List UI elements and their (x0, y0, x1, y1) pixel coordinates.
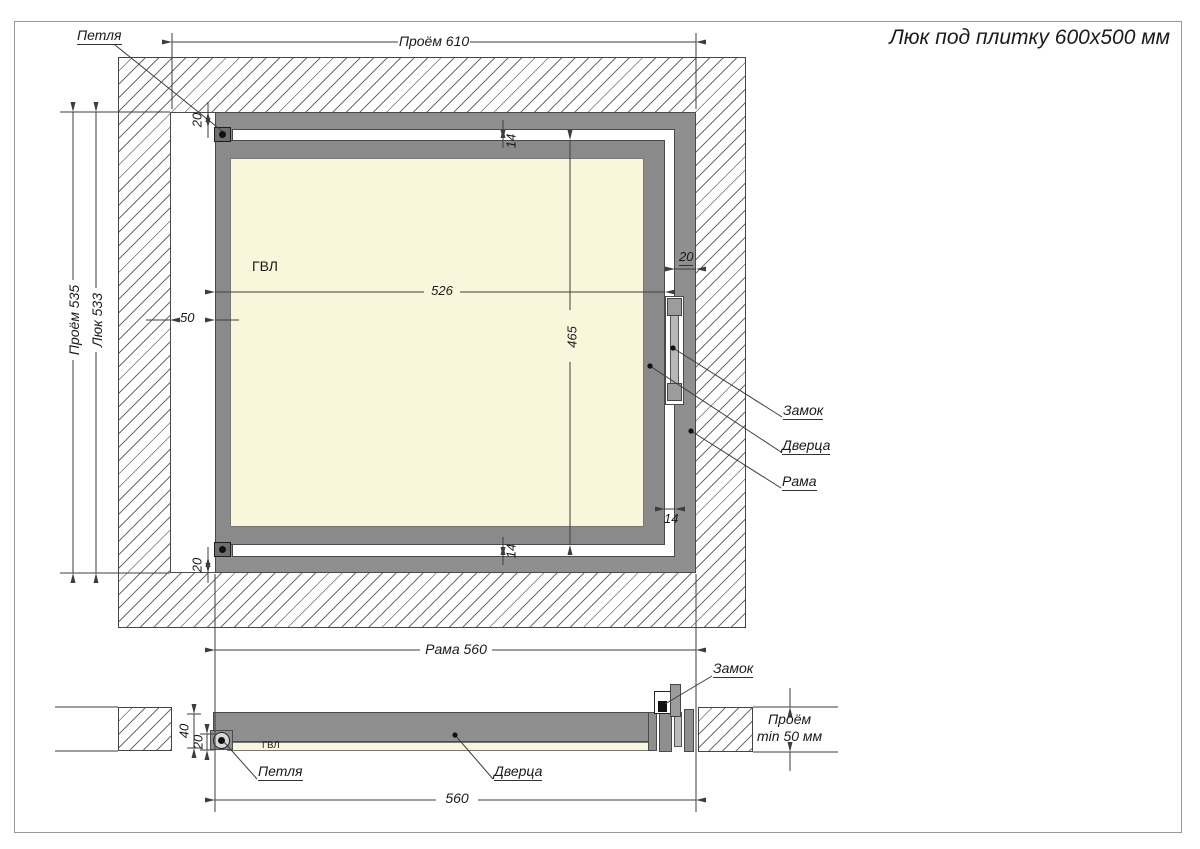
total-thickness-dim: 40 (177, 724, 192, 738)
section-lock-latch (658, 701, 667, 712)
frame-label-main: Рама (782, 473, 817, 491)
gap-top-dim: 14 (504, 134, 519, 148)
lock-label-main: Замок (783, 402, 823, 420)
section-frame-bar1 (648, 712, 657, 751)
section-wall-left (118, 707, 172, 751)
frame-thickness-bottom-dim: 20 (190, 558, 205, 572)
opening-depth-dim-line1: Проём (768, 711, 811, 727)
section-door-slab (213, 712, 654, 742)
hinge-label-section: Петля (258, 763, 303, 781)
section-frame-bar4 (684, 709, 694, 752)
door-width-dim: 526 (431, 283, 453, 298)
hinge-bottom-icon (214, 542, 231, 557)
gvl-label-section: ГВЛ (262, 740, 280, 751)
gap-right-dim: 14 (664, 511, 678, 526)
hinge-label-main: Петля (77, 27, 122, 45)
door-label-section: Дверца (494, 763, 542, 781)
frame-thickness-right-dim: 20 (679, 249, 693, 266)
opening-height-dim: Проём 535 (66, 285, 82, 355)
section-lock-bar (670, 684, 681, 717)
opening-depth-dim-line2: min 50 мм (757, 728, 822, 744)
gap-bottom-dim: 14 (504, 544, 519, 558)
opening-width-dim: Проём 610 (399, 33, 469, 49)
section-width-dim: 560 (445, 790, 468, 806)
section-hinge-icon (213, 732, 230, 749)
lock-cap-top (667, 298, 682, 316)
door-gvl-panel (230, 158, 644, 527)
frame-width-dim: Рама 560 (425, 641, 487, 657)
section-wall-right (698, 707, 753, 752)
hatch-height-dim: Люк 533 (89, 293, 105, 347)
section-frame-bar3 (674, 712, 682, 747)
door-label-main: Дверца (782, 437, 830, 455)
drawing-title: Люк под плитку 600х500 мм (840, 26, 1170, 50)
gvl-label-main: ГВЛ (252, 258, 278, 274)
side-gap-dim: 50 (180, 310, 194, 325)
frame-thickness-top-dim: 20 (190, 113, 205, 127)
lock-label-section: Замок (713, 660, 753, 678)
lock-cap-bottom (667, 383, 682, 401)
hinge-top-icon (214, 127, 231, 142)
section-gvl-layer (227, 742, 654, 751)
door-thickness-dim: 20 (191, 735, 206, 749)
drawing-canvas: Люк под плитку 600х500 мм (0, 0, 1200, 849)
door-height-dim: 465 (565, 326, 580, 348)
